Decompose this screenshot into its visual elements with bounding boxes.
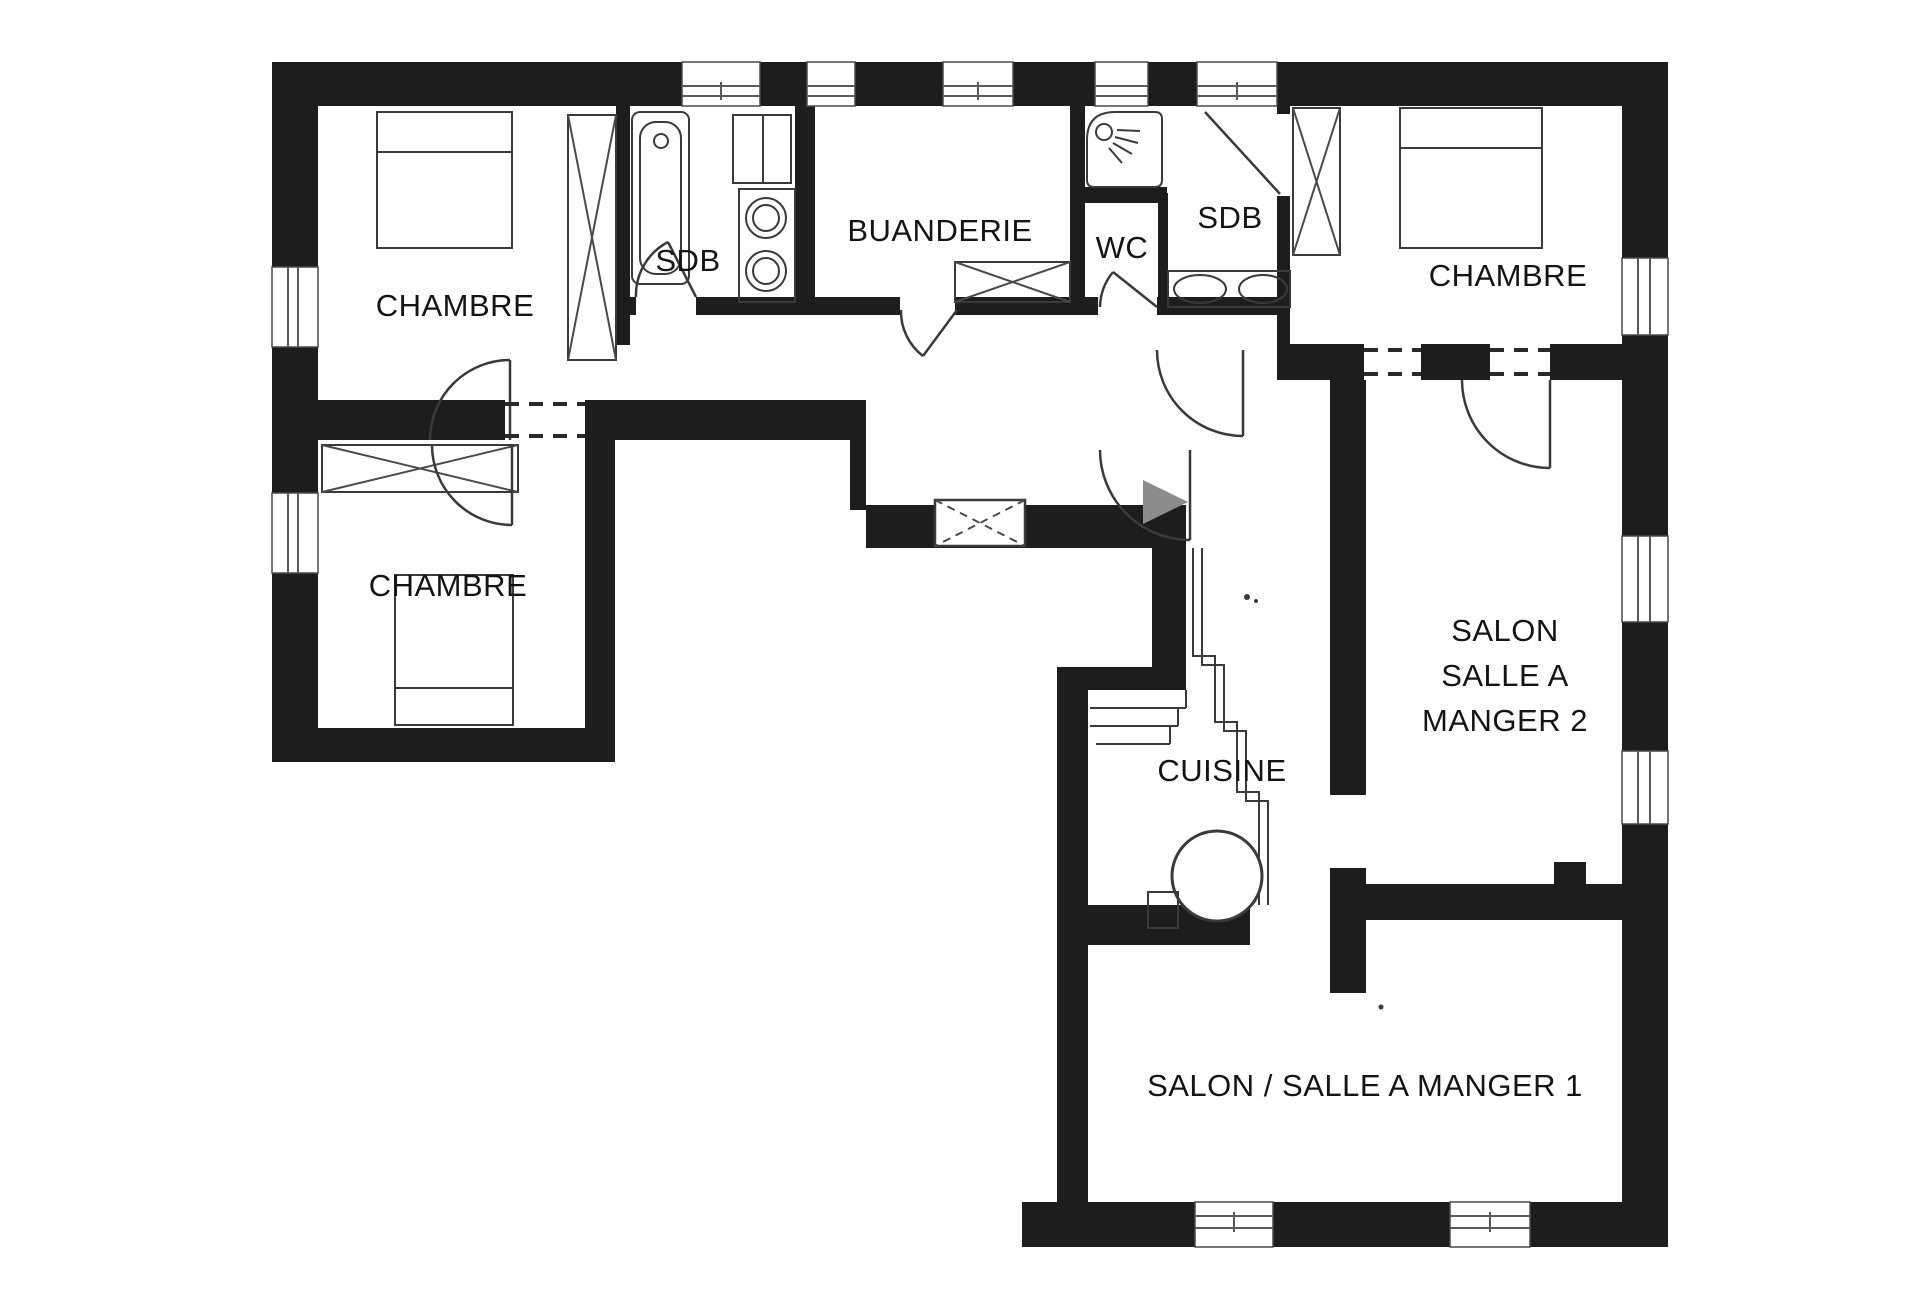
wall-chambre-tr-south bbox=[1421, 344, 1490, 380]
wall-salon2-west bbox=[1330, 380, 1366, 795]
wall-top bbox=[760, 62, 807, 106]
window-top-1 bbox=[682, 62, 760, 106]
wall-sdb-left-east bbox=[795, 106, 815, 297]
wall-bottom bbox=[1530, 1202, 1668, 1247]
window-top-5 bbox=[1197, 62, 1277, 106]
cabinet-sdb-left bbox=[733, 115, 791, 183]
wall-corridor-south-west bbox=[585, 400, 866, 440]
window-top-2 bbox=[807, 62, 855, 106]
bed-chambre-top-right bbox=[1400, 108, 1542, 248]
room-label-salon2-line2: SALLE A bbox=[1441, 658, 1569, 693]
wall-chambre-tr-south bbox=[1550, 344, 1668, 380]
opening-chambres-left bbox=[505, 404, 585, 436]
wall-salon1-west bbox=[1057, 945, 1088, 1202]
wall-salon2-west bbox=[1330, 868, 1366, 993]
wall-corridor-north bbox=[696, 297, 900, 315]
wall-hall-west bbox=[1057, 690, 1088, 905]
room-label-chambre-top-left: CHAMBRE bbox=[376, 288, 535, 323]
wall-corridor-north bbox=[955, 297, 1098, 315]
room-label-chambre-top-right: CHAMBRE bbox=[1429, 258, 1588, 293]
wall-left bbox=[272, 347, 318, 493]
door-corridor-east bbox=[1157, 350, 1243, 436]
door-wc bbox=[1100, 272, 1157, 307]
room-label-sdb-left: SDB bbox=[655, 243, 720, 278]
wall-salon2-south-notch bbox=[1554, 862, 1586, 884]
room-label-buanderie: BUANDERIE bbox=[847, 213, 1032, 248]
window-right-2 bbox=[1622, 536, 1668, 622]
wall-left bbox=[272, 106, 318, 267]
wall-shower-wc-divider bbox=[1082, 187, 1167, 203]
room-label-wc: WC bbox=[1096, 230, 1149, 265]
shower-tray bbox=[1087, 112, 1162, 187]
room-label-cuisine: CUISINE bbox=[1157, 753, 1286, 788]
floor-plan-drawing: CHAMBRE SDB BUANDERIE WC SDB CHAMBRE CHA… bbox=[0, 0, 1920, 1309]
wall-top bbox=[1277, 62, 1668, 106]
opening-salon2 bbox=[1490, 350, 1550, 374]
wall-salon2-south bbox=[1366, 884, 1622, 920]
wall-right bbox=[1622, 622, 1668, 751]
window-right-3 bbox=[1622, 751, 1668, 824]
sdb-right-door-leaf bbox=[1205, 112, 1280, 194]
wardrobe-chambre-top-right bbox=[1293, 108, 1340, 255]
wall-bottom bbox=[1273, 1202, 1450, 1247]
wall-chambre-bl-bottom bbox=[272, 728, 615, 762]
door-buanderie bbox=[901, 310, 957, 356]
wall-top bbox=[1148, 62, 1197, 106]
window-left-1 bbox=[272, 267, 318, 347]
wall-chambre-bl-top bbox=[318, 400, 505, 440]
window-bottom-2 bbox=[1450, 1202, 1530, 1247]
wall-top bbox=[272, 62, 682, 106]
wall-wc-east bbox=[1158, 193, 1168, 307]
bed-chambre-top-left bbox=[377, 112, 512, 248]
window-left-2 bbox=[272, 493, 318, 573]
wall-bottom bbox=[1022, 1202, 1195, 1247]
room-label-salon2-line3: MANGER 2 bbox=[1422, 703, 1588, 738]
wall-buanderie-east bbox=[1070, 106, 1085, 307]
wall-sdb-right-east bbox=[1277, 106, 1290, 114]
wall-top bbox=[855, 62, 943, 106]
window-top-4 bbox=[1095, 62, 1148, 106]
wall-step-stub bbox=[850, 440, 866, 510]
wall-left bbox=[272, 573, 318, 728]
wardrobe-chambre-top-left bbox=[568, 115, 616, 360]
window-right-1 bbox=[1622, 258, 1668, 335]
wall-chambre-bl-east bbox=[585, 440, 615, 728]
wall-top bbox=[1013, 62, 1095, 106]
wall-right bbox=[1622, 106, 1668, 258]
washer-dryer-stack bbox=[739, 189, 795, 302]
room-label-sdb-right: SDB bbox=[1197, 200, 1262, 235]
porch-steps bbox=[1090, 690, 1186, 744]
wall-hall-jog bbox=[1057, 667, 1186, 690]
wall-chambre-tr-south bbox=[1277, 344, 1364, 380]
opening-chambre-top-right bbox=[1364, 350, 1421, 374]
closet-buanderie bbox=[955, 262, 1070, 302]
closet-corridor bbox=[935, 500, 1025, 546]
floor-plan-page: CHAMBRE SDB BUANDERIE WC SDB CHAMBRE CHA… bbox=[0, 0, 1920, 1309]
wall-right bbox=[1622, 824, 1668, 1202]
window-top-3 bbox=[943, 62, 1013, 106]
door-salon2 bbox=[1462, 380, 1550, 468]
shower-head-icon bbox=[1096, 124, 1140, 163]
window-bottom-1 bbox=[1195, 1202, 1273, 1247]
room-label-chambre-bottom-left: CHAMBRE bbox=[369, 568, 528, 603]
wall-corridor-north bbox=[616, 297, 636, 315]
room-label-salon2-line1: SALON bbox=[1451, 613, 1559, 648]
room-label-salon1: SALON / SALLE A MANGER 1 bbox=[1147, 1068, 1583, 1103]
wardrobe-chambre-bottom-left bbox=[322, 445, 518, 492]
